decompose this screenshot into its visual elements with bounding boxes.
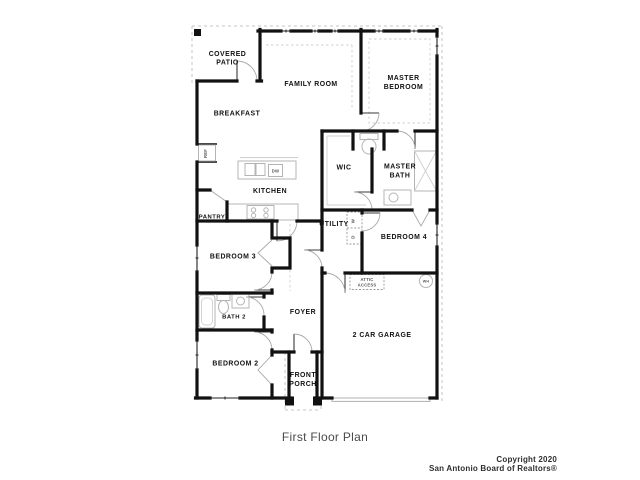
room-label-bath-2: BATH 2: [222, 315, 246, 321]
patio-post: [194, 29, 201, 36]
bath2-sink: [232, 294, 249, 308]
bathtub: [199, 295, 215, 328]
utility-door: [304, 250, 322, 268]
kitchen-island: [238, 158, 298, 180]
front-door: [294, 334, 312, 352]
wic-door: [354, 192, 372, 210]
room-label-master-bath: MASTERBATH: [384, 164, 416, 180]
master-toilet: [360, 134, 378, 155]
bedroom3-closet-door: [258, 240, 272, 266]
master-bath-door: [397, 131, 415, 149]
fixture-label-attic-access: ATTICACCESS: [358, 277, 377, 287]
room-label-family-room: FAMILY ROOM: [284, 81, 337, 88]
room-label-wic: WIC: [337, 165, 352, 172]
garage-door: [332, 398, 430, 401]
master-vanity-sink: [384, 190, 411, 205]
fixture-label-dw: DW: [272, 169, 279, 174]
room-label-front-porch: FRONTPORCH: [289, 372, 316, 388]
bedroom4-door: [362, 213, 380, 231]
bedroom3-door: [254, 272, 272, 290]
porch-post-left: [285, 397, 294, 406]
room-label-bedroom-4: BEDROOM 4: [381, 234, 427, 241]
range-counter: [226, 204, 298, 220]
bath2-toilet: [217, 295, 230, 314]
fixture-label-washer: W: [351, 218, 356, 223]
room-label-kitchen: KITCHEN: [253, 188, 287, 195]
floor-plan-drawing: COVEREDPATIOFAMILY ROOMMASTERBEDROOMBREA…: [0, 0, 640, 480]
fixture-label-water-heater: WH: [423, 280, 430, 284]
pantry-door: [210, 190, 227, 202]
room-label-covered-patio: COVEREDPATIO: [209, 51, 247, 67]
room-label-foyer: FOYER: [290, 309, 316, 316]
room-label-pantry: PANTRY: [199, 215, 226, 221]
copyright-line-1: Copyright 2020: [496, 455, 557, 464]
room-label-bedroom-3: BEDROOM 3: [210, 254, 256, 261]
fixture-label-dryer: D: [351, 235, 356, 238]
master-shower: [415, 151, 437, 191]
plan-caption: First Floor Plan: [282, 430, 368, 444]
bath-bedroom4-door: [412, 210, 430, 226]
bedroom2-closet-door: [258, 355, 272, 385]
fixture-label-ref: REF: [203, 149, 208, 158]
floor-plan-page: COVEREDPATIOFAMILY ROOMMASTERBEDROOMBREA…: [0, 0, 640, 480]
room-label-garage: 2 CAR GARAGE: [353, 332, 412, 339]
room-label-bedroom-2: BEDROOM 2: [212, 361, 258, 368]
room-label-breakfast: BREAKFAST: [214, 111, 261, 118]
room-label-master-bedroom: MASTERBEDROOM: [384, 75, 423, 91]
room-label-utility: UTILITY: [319, 221, 349, 228]
master-bedroom-door: [361, 113, 379, 131]
patio-door: [237, 61, 257, 81]
copyright-line-2: San Antonio Board of Realtors®: [429, 464, 557, 473]
garage-entry-door: [325, 273, 345, 293]
porch-post-right: [313, 397, 322, 406]
bedroom2-door: [254, 332, 272, 350]
